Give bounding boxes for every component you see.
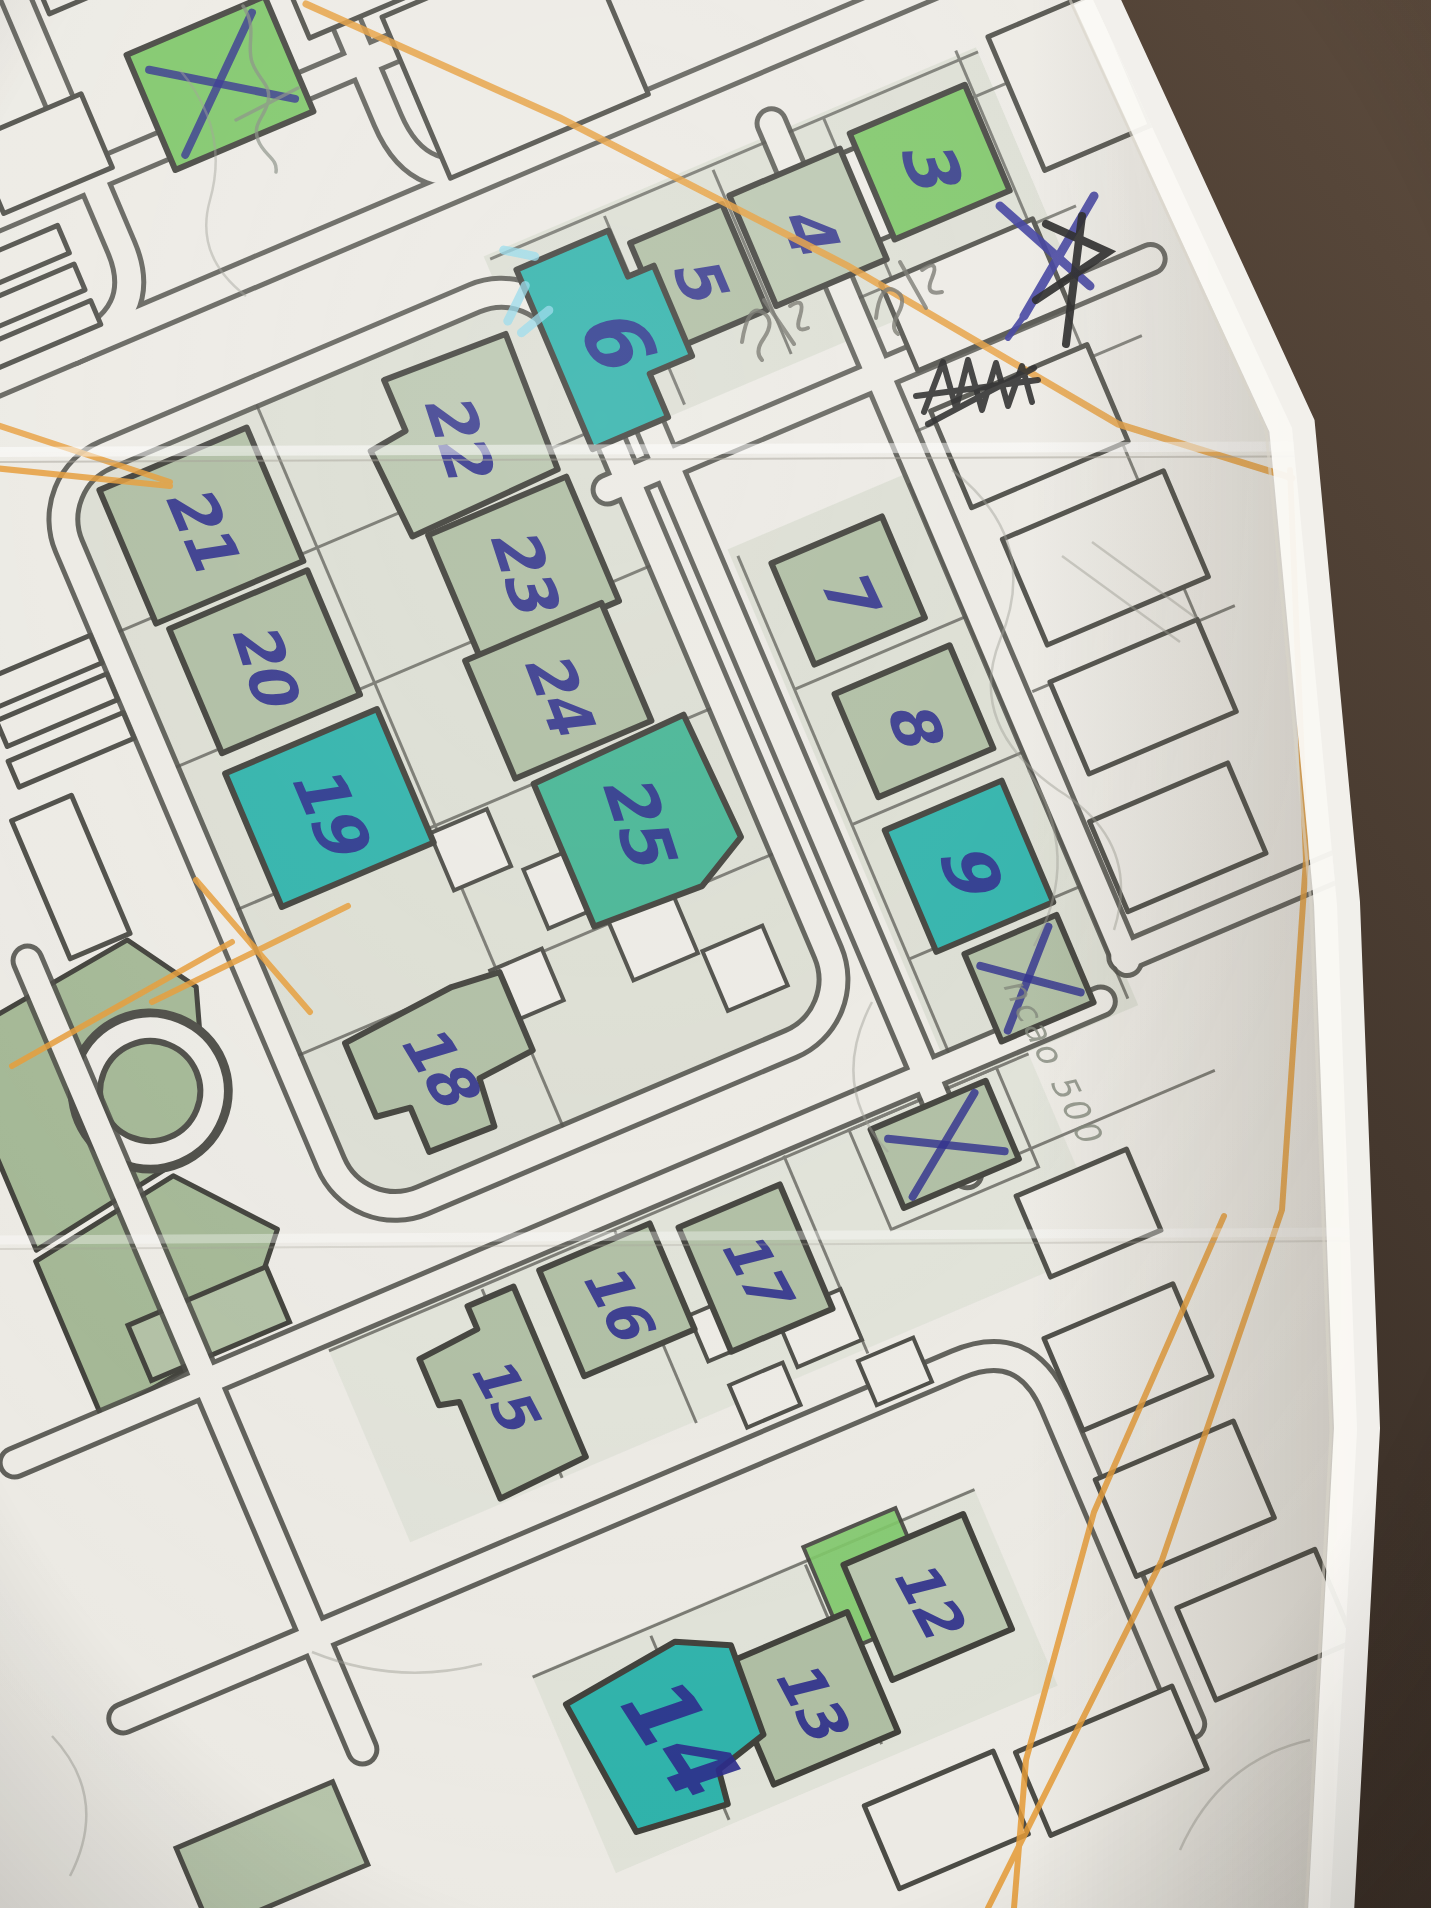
photo-of-annotated-map: 34567891716151819202122232425121314: [0, 0, 1431, 1908]
map-photo: 34567891716151819202122232425121314: [0, 0, 1431, 1908]
photo-vignette: [0, 0, 1431, 1908]
